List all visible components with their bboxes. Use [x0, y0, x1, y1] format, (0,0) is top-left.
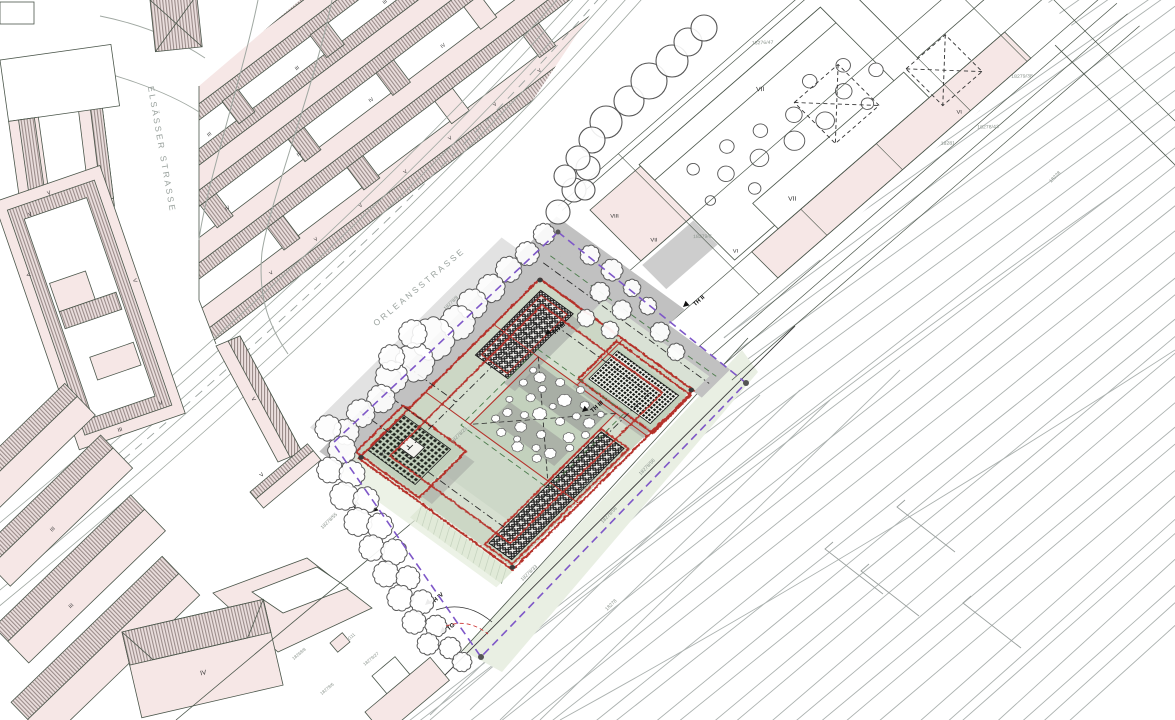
- svg-text:18276/47: 18276/47: [752, 40, 774, 46]
- svg-text:18279/8: 18279/8: [693, 234, 712, 240]
- svg-text:18281: 18281: [941, 141, 956, 147]
- svg-text:VII: VII: [756, 86, 765, 93]
- svg-text:18279/38: 18279/38: [1011, 73, 1033, 79]
- svg-text:18278/43: 18278/43: [977, 124, 999, 130]
- svg-text:VIII: VIII: [610, 214, 619, 220]
- svg-text:VII: VII: [788, 196, 797, 203]
- svg-text:VI: VI: [956, 110, 962, 116]
- svg-text:VII: VII: [650, 238, 658, 244]
- svg-text:VI: VI: [733, 249, 739, 255]
